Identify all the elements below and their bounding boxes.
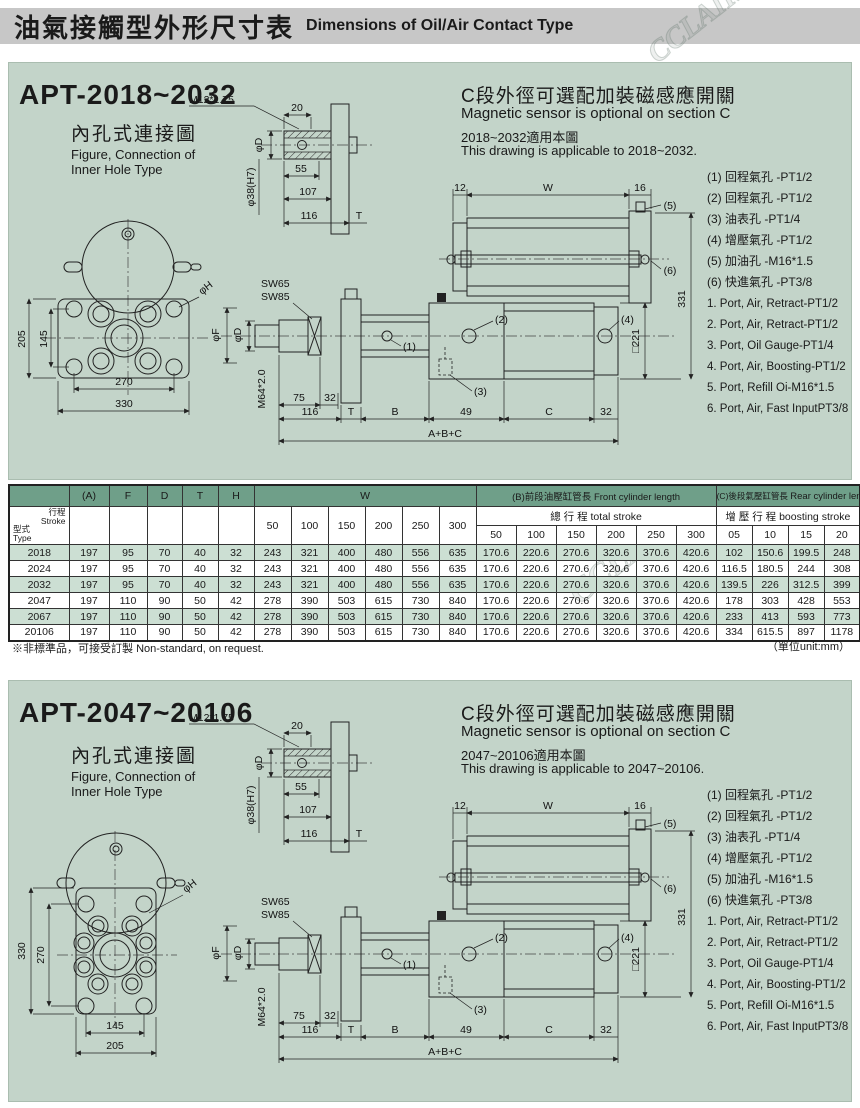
footnote: ※非標準品，可接受訂製 Non-standard, on request.: [12, 640, 264, 656]
dim-49: 49: [460, 1024, 472, 1036]
dim-phi-d: φD: [253, 137, 265, 152]
value-cell: 220.6: [516, 561, 556, 577]
dim-phi-d-side: φD: [232, 327, 244, 342]
connection-label-en-line2: Inner Hole Type: [71, 784, 195, 799]
port-list-item: 6. Port, Air, Fast InputPT3/8: [707, 1017, 848, 1038]
value-cell: 399: [824, 577, 860, 593]
dim-12: 12: [454, 182, 466, 194]
dim-331: 331: [676, 290, 688, 308]
dim-t: T: [356, 210, 363, 222]
w-col-200: 200: [365, 507, 402, 545]
dim-flange-inner-v: 270: [35, 946, 47, 964]
unit-note: （單位unit:mm）: [767, 638, 850, 654]
col-header-d: D: [147, 485, 182, 507]
value-cell: 593: [788, 609, 824, 625]
row-type-cell: 2032: [9, 577, 69, 593]
value-cell: 90: [147, 625, 182, 641]
value-cell: 40: [182, 545, 218, 561]
callout-4: (4): [621, 932, 634, 944]
value-cell: 243: [254, 561, 291, 577]
port-list-item: (5) 加油孔 -M16*1.5: [707, 869, 813, 890]
value-cell: 635: [439, 545, 476, 561]
port-list-item: 5. Port, Refill Oi-M16*1.5: [707, 996, 848, 1017]
value-cell: 420.6: [676, 593, 716, 609]
row-type-cell: 2067: [9, 609, 69, 625]
value-cell: 32: [218, 545, 254, 561]
value-cell: 42: [218, 593, 254, 609]
b-col-50: 50: [476, 526, 516, 545]
value-cell: 220.6: [516, 593, 556, 609]
section-title: APT-2018~2032: [19, 79, 237, 111]
port-list-item: (6) 快進氣孔 -PT3/8: [707, 272, 813, 293]
dim-b: B: [391, 1024, 398, 1036]
value-cell: 730: [402, 625, 439, 641]
value-cell: 730: [402, 609, 439, 625]
dim-phi38: φ38(H7): [245, 786, 257, 825]
port-list-item: 1. Port, Air, Retract-PT1/2: [707, 912, 848, 933]
value-cell: 233: [716, 609, 752, 625]
table-row: 202419795704032243321400480556635170.622…: [9, 561, 860, 577]
b-col-300: 300: [676, 526, 716, 545]
label-sw85: SW85: [261, 909, 290, 921]
dims-table: (A) F D T H W (B)前段油壓缸管長 Front cylinder …: [8, 484, 860, 642]
dim-107: 107: [299, 804, 317, 816]
dim-16: 16: [634, 800, 646, 812]
value-cell: 390: [291, 609, 328, 625]
port-list-item: 4. Port, Air, Boosting-PT1/2: [707, 975, 848, 996]
section-apt-2018-2032: 20 M12*1.75 φD φ38(H7) 55 107 116 T: [8, 62, 852, 480]
callout-1: (1): [403, 959, 416, 971]
value-cell: 428: [788, 593, 824, 609]
detail-view: 20 M12*1.75 φD φ38(H7) 55 107 116 T: [189, 94, 373, 234]
dim-49: 49: [460, 406, 472, 418]
dim-m64: M64*2.0: [256, 987, 268, 1026]
range-note-en: This drawing is applicable to 2018~2032.: [461, 143, 697, 158]
c-col-05: 05: [716, 526, 752, 545]
value-cell: 278: [254, 625, 291, 641]
value-cell: 90: [147, 593, 182, 609]
value-cell: 170.6: [476, 561, 516, 577]
value-cell: 312.5: [788, 577, 824, 593]
dimension-table-section: (A) F D T H W (B)前段油壓缸管長 Front cylinder …: [8, 484, 852, 642]
value-cell: 42: [218, 609, 254, 625]
dim-t-side: T: [348, 1024, 355, 1036]
table-row: 20106197110905042278390503615730840170.6…: [9, 625, 860, 641]
label-sw65: SW65: [261, 278, 290, 290]
value-cell: 226: [752, 577, 788, 593]
dim-w: W: [543, 800, 553, 812]
value-cell: 278: [254, 609, 291, 625]
value-cell: 321: [291, 577, 328, 593]
section-title: APT-2047~20106: [19, 697, 253, 729]
b-col-150: 150: [556, 526, 596, 545]
dim-12: 12: [454, 800, 466, 812]
dim-32a: 32: [324, 392, 336, 404]
col-header-w: W: [254, 485, 476, 507]
callout-1: (1): [403, 341, 416, 353]
ports-legend-zh: (1) 回程氣孔 -PT1/2(2) 回程氣孔 -PT1/2(3) 油表孔 -P…: [707, 167, 813, 293]
dim-phi-h: φH: [196, 279, 215, 297]
ports-legend-en: 1. Port, Air, Retract-PT1/22. Port, Air,…: [707, 294, 848, 420]
value-cell: 420.6: [676, 545, 716, 561]
dim-221: □221: [630, 329, 642, 353]
value-cell: 110: [109, 609, 147, 625]
value-cell: 480: [365, 577, 402, 593]
corner-top-strip: [9, 485, 69, 507]
row-type-cell: 2018: [9, 545, 69, 561]
dim-m64: M64*2.0: [256, 369, 268, 408]
value-cell: 170.6: [476, 593, 516, 609]
value-cell: 197: [69, 545, 109, 561]
value-cell: 320.6: [596, 609, 636, 625]
port-list-item: (3) 油表孔 -PT1/4: [707, 827, 813, 848]
value-cell: 197: [69, 625, 109, 641]
value-cell: 503: [328, 593, 365, 609]
value-cell: 480: [365, 545, 402, 561]
value-cell: 90: [147, 609, 182, 625]
value-cell: 243: [254, 577, 291, 593]
value-cell: 840: [439, 625, 476, 641]
c-sub-zh: 增 壓 行 程: [725, 511, 776, 523]
value-cell: 150.6: [752, 545, 788, 561]
w-col-300: 300: [439, 507, 476, 545]
w-col-250: 250: [402, 507, 439, 545]
callout-6: (6): [664, 883, 677, 895]
c-sub-en: boosting stroke: [779, 511, 850, 523]
dim-abc: A+B+C: [428, 428, 462, 440]
port-list-item: 6. Port, Air, Fast InputPT3/8: [707, 399, 848, 420]
group-b-zh: (B)前段油壓缸管長: [512, 492, 591, 503]
value-cell: 95: [109, 545, 147, 561]
port-list-item: 4. Port, Air, Boosting-PT1/2: [707, 357, 848, 378]
b-sub-zh: 總 行 程: [550, 511, 587, 523]
b-col-200: 200: [596, 526, 636, 545]
value-cell: 413: [752, 609, 788, 625]
callout-5: (5): [664, 818, 677, 830]
value-cell: 220.6: [516, 545, 556, 561]
port-list-item: 3. Port, Oil Gauge-PT1/4: [707, 954, 848, 975]
value-cell: 420.6: [676, 577, 716, 593]
dim-c: C: [545, 406, 553, 418]
corner-stroke-en: Stroke: [41, 516, 66, 526]
label-sw65: SW65: [261, 896, 290, 908]
port-list-item: (4) 增壓氣孔 -PT1/2: [707, 230, 813, 251]
value-cell: 220.6: [516, 577, 556, 593]
value-cell: 95: [109, 561, 147, 577]
dim-75: 75: [293, 1010, 305, 1022]
value-cell: 102: [716, 545, 752, 561]
dim-t-side: T: [348, 406, 355, 418]
connection-label-en: Figure, Connection of Inner Hole Type: [71, 147, 195, 177]
port-list-item: 1. Port, Air, Retract-PT1/2: [707, 294, 848, 315]
b-subheader: 總 行 程 total stroke: [476, 507, 716, 526]
value-cell: 553: [824, 593, 860, 609]
value-cell: 400: [328, 545, 365, 561]
value-cell: 197: [69, 593, 109, 609]
value-cell: 270.6: [556, 625, 596, 641]
value-cell: 334: [716, 625, 752, 641]
dim-55: 55: [295, 163, 307, 175]
row-type-cell: 2047: [9, 593, 69, 609]
value-cell: 139.5: [716, 577, 752, 593]
section-apt-2047-20106: 20 M12*1.75 φD φ38(H7) 55 107 116 T: [8, 680, 852, 1102]
value-cell: 615: [365, 625, 402, 641]
connection-label-en-line1: Figure, Connection of: [71, 147, 195, 162]
dim-c: C: [545, 1024, 553, 1036]
value-cell: 220.6: [516, 625, 556, 641]
flange-front-view: φH 205 145 270 330: [16, 219, 215, 415]
value-cell: 556: [402, 577, 439, 593]
empty-cell: [109, 507, 147, 545]
value-cell: 321: [291, 545, 328, 561]
dim-flange-outer-v: 330: [16, 942, 28, 960]
port-list-item: (5) 加油孔 -M16*1.5: [707, 251, 813, 272]
value-cell: 270.6: [556, 593, 596, 609]
dim-331: 331: [676, 908, 688, 926]
col-header-a: (A): [69, 485, 109, 507]
port-list-item: (1) 回程氣孔 -PT1/2: [707, 167, 813, 188]
value-cell: 400: [328, 561, 365, 577]
port-list-item: (2) 回程氣孔 -PT1/2: [707, 806, 813, 827]
value-cell: 370.6: [636, 561, 676, 577]
dim-flange-inner-h: 145: [106, 1020, 124, 1032]
empty-cell: [182, 507, 218, 545]
b-col-250: 250: [636, 526, 676, 545]
value-cell: 180.5: [752, 561, 788, 577]
value-cell: 615: [365, 609, 402, 625]
value-cell: 278: [254, 593, 291, 609]
dim-75: 75: [293, 392, 305, 404]
group-c-zh: (C)後段氣壓缸管長: [717, 491, 788, 501]
connection-label-en-line1: Figure, Connection of: [71, 769, 195, 784]
footnote-zh: ※非標準品，可接受訂製: [12, 643, 133, 655]
value-cell: 32: [218, 577, 254, 593]
side-view: φF φD SW65 SW85 M64*2.0 (1): [210, 800, 695, 1063]
value-cell: 390: [291, 625, 328, 641]
value-cell: 370.6: [636, 577, 676, 593]
callout-2: (2): [495, 314, 508, 326]
value-cell: 321: [291, 561, 328, 577]
value-cell: 635: [439, 577, 476, 593]
value-cell: 244: [788, 561, 824, 577]
value-cell: 556: [402, 561, 439, 577]
value-cell: 197: [69, 561, 109, 577]
value-cell: 50: [182, 625, 218, 641]
label-sw85: SW85: [261, 291, 290, 303]
connection-label-en: Figure, Connection of Inner Hole Type: [71, 769, 195, 799]
dim-55: 55: [295, 781, 307, 793]
value-cell: 50: [182, 609, 218, 625]
dim-phi-f: φF: [210, 328, 222, 341]
value-cell: 370.6: [636, 609, 676, 625]
value-cell: 556: [402, 545, 439, 561]
w-col-150: 150: [328, 507, 365, 545]
corner-cell: 行程 Stroke 型式 Type: [9, 507, 69, 545]
dim-phi38: φ38(H7): [245, 168, 257, 207]
empty-cell: [147, 507, 182, 545]
value-cell: 270.6: [556, 609, 596, 625]
value-cell: 243: [254, 545, 291, 561]
group-b-en: Front cylinder length: [594, 492, 680, 503]
value-cell: 70: [147, 577, 182, 593]
value-cell: 70: [147, 561, 182, 577]
value-cell: 220.6: [516, 609, 556, 625]
table-row: 201819795704032243321400480556635170.622…: [9, 545, 860, 561]
callout-3: (3): [474, 386, 487, 398]
value-cell: 32: [218, 561, 254, 577]
b-sub-en: total stroke: [591, 511, 642, 523]
dim-107: 107: [299, 186, 317, 198]
port-list-item: (6) 快進氣孔 -PT3/8: [707, 890, 813, 911]
dim-abc: A+B+C: [428, 1046, 462, 1058]
value-cell: 635: [439, 561, 476, 577]
empty-cell: [218, 507, 254, 545]
dim-116-side: 116: [302, 1024, 319, 1036]
value-cell: 320.6: [596, 577, 636, 593]
dim-20: 20: [291, 102, 303, 114]
dim-phi-d: φD: [253, 755, 265, 770]
value-cell: 303: [752, 593, 788, 609]
port-list-item: 2. Port, Air, Retract-PT1/2: [707, 315, 848, 336]
catalog-page: 油氣接觸型外形尺寸表 Dimensions of Oil/Air Contact…: [0, 0, 860, 1108]
value-cell: 50: [182, 593, 218, 609]
value-cell: 840: [439, 593, 476, 609]
callout-4: (4): [621, 314, 634, 326]
port-list-item: (3) 油表孔 -PT1/4: [707, 209, 813, 230]
page-title-zh: 油氣接觸型外形尺寸表: [14, 8, 294, 45]
empty-cell: [69, 507, 109, 545]
dim-32a: 32: [324, 1010, 336, 1022]
dim-32b: 32: [600, 406, 612, 418]
value-cell: 308: [824, 561, 860, 577]
dim-221: □221: [630, 947, 642, 971]
col-header-f: F: [109, 485, 147, 507]
side-view: φF φD SW65 SW85 M64*2.0 (1): [210, 182, 695, 445]
sensor-note-en: Magnetic sensor is optional on section C: [461, 723, 730, 740]
dim-t: T: [356, 828, 363, 840]
value-cell: 110: [109, 593, 147, 609]
dim-116: 116: [301, 828, 318, 840]
value-cell: 503: [328, 609, 365, 625]
value-cell: 730: [402, 593, 439, 609]
port-list-item: (1) 回程氣孔 -PT1/2: [707, 785, 813, 806]
callout-6: (6): [664, 265, 677, 277]
row-type-cell: 20106: [9, 625, 69, 641]
table-row: 203219795704032243321400480556635170.622…: [9, 577, 860, 593]
callout-3: (3): [474, 1004, 487, 1016]
dim-flange-inner-h: 270: [115, 376, 133, 388]
ports-legend-en: 1. Port, Air, Retract-PT1/22. Port, Air,…: [707, 912, 848, 1038]
sensor-note-en: Magnetic sensor is optional on section C: [461, 105, 730, 122]
value-cell: 110: [109, 625, 147, 641]
value-cell: 178: [716, 593, 752, 609]
value-cell: 170.6: [476, 577, 516, 593]
dim-20: 20: [291, 720, 303, 732]
sensor-note-zh: C段外徑可選配加裝磁感應開關: [461, 699, 736, 726]
value-cell: 370.6: [636, 625, 676, 641]
c-col-15: 15: [788, 526, 824, 545]
value-cell: 197: [69, 577, 109, 593]
value-cell: 40: [182, 561, 218, 577]
dim-16: 16: [634, 182, 646, 194]
port-list-item: (4) 增壓氣孔 -PT1/2: [707, 848, 813, 869]
value-cell: 480: [365, 561, 402, 577]
c-subheader: 增 壓 行 程 boosting stroke: [716, 507, 860, 526]
value-cell: 197: [69, 609, 109, 625]
value-cell: 42: [218, 625, 254, 641]
value-cell: 773: [824, 609, 860, 625]
value-cell: 420.6: [676, 609, 716, 625]
port-list-item: 2. Port, Air, Retract-PT1/2: [707, 933, 848, 954]
value-cell: 70: [147, 545, 182, 561]
value-cell: 370.6: [636, 545, 676, 561]
dim-flange-outer-h: 205: [106, 1040, 124, 1052]
value-cell: 320.6: [596, 625, 636, 641]
port-list-item: (2) 回程氣孔 -PT1/2: [707, 188, 813, 209]
value-cell: 400: [328, 577, 365, 593]
connection-label-zh: 內孔式連接圖: [71, 741, 197, 768]
value-cell: 248: [824, 545, 860, 561]
value-cell: 390: [291, 593, 328, 609]
dim-b: B: [391, 406, 398, 418]
w-col-50: 50: [254, 507, 291, 545]
value-cell: 840: [439, 609, 476, 625]
dim-flange-outer-v: 205: [16, 330, 28, 348]
c-col-10: 10: [752, 526, 788, 545]
value-cell: 170.6: [476, 625, 516, 641]
value-cell: 116.5: [716, 561, 752, 577]
connection-label-zh: 內孔式連接圖: [71, 119, 197, 146]
ports-legend-zh: (1) 回程氣孔 -PT1/2(2) 回程氣孔 -PT1/2(3) 油表孔 -P…: [707, 785, 813, 911]
value-cell: 320.6: [596, 593, 636, 609]
callout-2: (2): [495, 932, 508, 944]
row-type-cell: 2024: [9, 561, 69, 577]
group-c-en: Rear cylinder length: [790, 491, 860, 502]
value-cell: 320.6: [596, 561, 636, 577]
dim-32b: 32: [600, 1024, 612, 1036]
group-header-c: (C)後段氣壓缸管長 Rear cylinder length: [716, 485, 860, 507]
value-cell: 615: [365, 593, 402, 609]
dims-table-body: 201819795704032243321400480556635170.622…: [9, 545, 860, 641]
value-cell: 270.6: [556, 545, 596, 561]
table-row: 2067197110905042278390503615730840170.62…: [9, 609, 860, 625]
value-cell: 270.6: [556, 577, 596, 593]
port-list-item: 3. Port, Oil Gauge-PT1/4: [707, 336, 848, 357]
value-cell: 320.6: [596, 545, 636, 561]
w-col-100: 100: [291, 507, 328, 545]
value-cell: 199.5: [788, 545, 824, 561]
value-cell: 503: [328, 625, 365, 641]
value-cell: 40: [182, 577, 218, 593]
flange-front-view: φH 330 270 145 205: [16, 831, 199, 1057]
b-col-100: 100: [516, 526, 556, 545]
dim-flange-inner-v: 145: [38, 330, 50, 348]
dim-phi-f: φF: [210, 946, 222, 959]
dim-phi-d-side: φD: [232, 945, 244, 960]
detail-view: 20 M12*1.75 φD φ38(H7) 55 107 116 T: [189, 712, 373, 852]
footnote-en: Non-standard, on request.: [136, 643, 264, 655]
col-header-t: T: [182, 485, 218, 507]
c-col-20: 20: [824, 526, 860, 545]
group-header-b: (B)前段油壓缸管長 Front cylinder length: [476, 485, 716, 507]
value-cell: 370.6: [636, 593, 676, 609]
dim-flange-outer-h: 330: [115, 398, 133, 410]
value-cell: 170.6: [476, 609, 516, 625]
page-title-en: Dimensions of Oil/Air Contact Type: [306, 17, 573, 35]
callout-5: (5): [664, 200, 677, 212]
table-row: 2047197110905042278390503615730840170.62…: [9, 593, 860, 609]
connection-label-en-line2: Inner Hole Type: [71, 162, 195, 177]
